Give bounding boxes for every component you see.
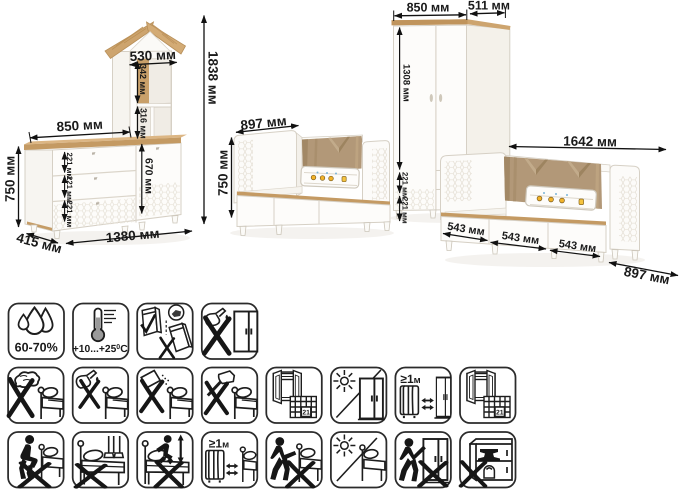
svg-text:850 мм: 850 мм: [56, 117, 103, 135]
svg-text:1308 мм: 1308 мм: [401, 64, 412, 102]
svg-text:221 мм: 221 мм: [65, 176, 74, 203]
svg-text:221 мм: 221 мм: [65, 201, 74, 228]
svg-text:342 мм: 342 мм: [138, 64, 148, 95]
svg-text:670 мм: 670 мм: [143, 158, 155, 194]
svg-text:750 мм: 750 мм: [216, 150, 231, 196]
svg-text:316 мм: 316 мм: [139, 108, 149, 139]
svg-text:1838 мм: 1838 мм: [206, 51, 221, 105]
svg-text:221 мм: 221 мм: [401, 197, 410, 224]
svg-text:530 мм: 530 мм: [129, 47, 176, 64]
svg-text:≥1м: ≥1м: [400, 372, 420, 386]
svg-text:+10...+250C: +10...+250C: [73, 344, 128, 355]
svg-text:1642 мм: 1642 мм: [563, 134, 617, 150]
svg-text:850 мм: 850 мм: [407, 1, 450, 15]
svg-text:221 мм: 221 мм: [401, 172, 410, 199]
svg-text:≥1м: ≥1м: [209, 437, 229, 451]
svg-text:60-70%: 60-70%: [15, 341, 58, 355]
svg-text:750 мм: 750 мм: [3, 156, 18, 202]
svg-text:511 мм: 511 мм: [468, 0, 510, 13]
